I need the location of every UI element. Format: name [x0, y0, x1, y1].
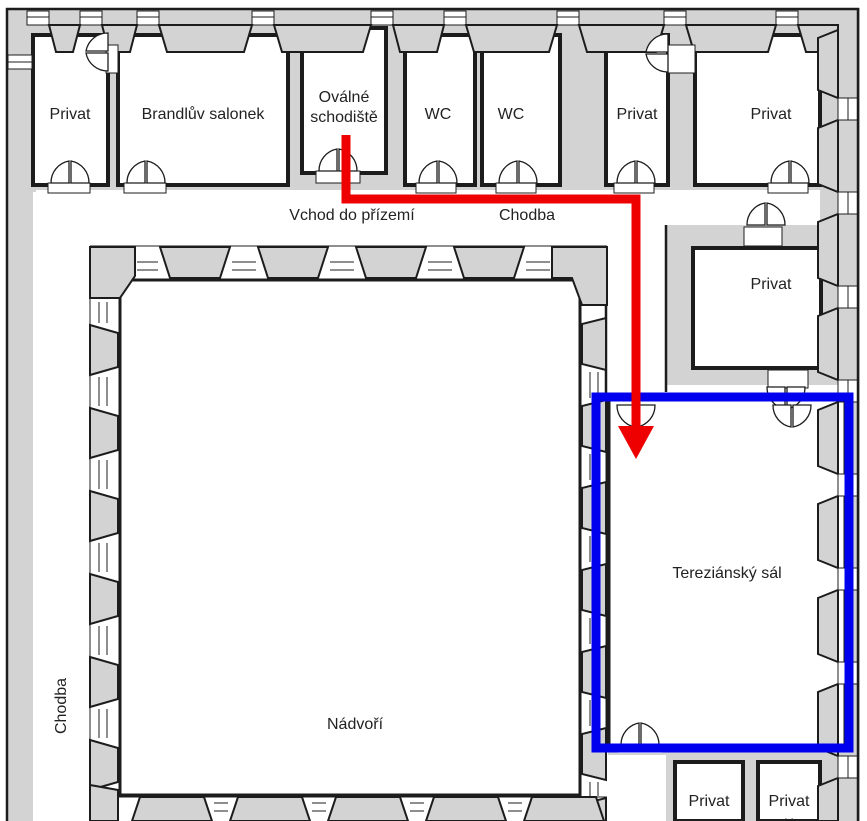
label-privat-e: Privat	[751, 276, 792, 293]
pillar	[90, 574, 118, 624]
label-ovalne-line2: schodiště	[310, 109, 378, 126]
room-privat-e	[693, 248, 821, 368]
pillar	[454, 247, 524, 278]
door-opening	[768, 370, 808, 388]
label-privat-s2-cutoff: ( )	[781, 817, 796, 821]
pillar	[90, 491, 118, 541]
pillar	[90, 408, 118, 458]
door-opening	[124, 183, 166, 193]
room-privat-s1	[675, 762, 743, 821]
floor-plan-page: Privat Brandlův salonek Oválné schodiště…	[0, 0, 867, 821]
wall-bays	[818, 30, 838, 821]
label-privat-s2: Privat	[769, 793, 810, 810]
label-nadvori: Nádvoří	[327, 716, 384, 733]
wall-band	[6, 8, 860, 25]
room-privat-s2	[758, 762, 820, 821]
pillar	[90, 785, 118, 821]
pillar	[328, 797, 408, 821]
label-brandluv-salonek: Brandlův salonek	[142, 105, 266, 123]
pillar	[582, 318, 606, 370]
label-terezansky-sal: Tereziánský sál	[672, 565, 781, 582]
label-vchod-do-prizemi: Vchod do přízemí	[289, 207, 415, 224]
pillar	[230, 797, 310, 821]
passage-below-hall	[608, 755, 666, 821]
label-privat-n2: Privat	[751, 106, 792, 123]
door-opening	[768, 183, 808, 193]
label-ovalne-line1: Oválné	[319, 89, 370, 106]
pillar	[356, 247, 426, 278]
label-wc-2: WC	[498, 106, 525, 123]
label-privat-n1: Privat	[617, 106, 658, 123]
pillar	[90, 740, 118, 790]
pillar	[90, 657, 118, 707]
door-opening	[614, 183, 654, 193]
label-chodba-top: Chodba	[499, 207, 555, 224]
door-opening	[744, 227, 782, 246]
label-privat-s1: Privat	[689, 793, 730, 810]
left-outer-wall	[6, 8, 33, 821]
door-opening	[496, 183, 536, 193]
left-wall-window	[8, 55, 32, 69]
rooms-layer	[33, 28, 846, 821]
door-opening	[48, 183, 90, 193]
label-wc-1: WC	[425, 106, 452, 123]
floor-plan: Privat Brandlův salonek Oválné schodiště…	[0, 0, 867, 821]
door-opening	[316, 171, 360, 183]
pillar	[132, 797, 212, 821]
pillar	[258, 247, 328, 278]
door-opening	[668, 45, 695, 73]
pillar	[90, 325, 118, 375]
label-privat-nw: Privat	[50, 106, 91, 123]
door-opening	[416, 183, 456, 193]
label-chodba-left: Chodba	[53, 678, 70, 734]
pillar	[524, 797, 604, 821]
pillar	[426, 797, 506, 821]
pillar	[160, 247, 230, 278]
